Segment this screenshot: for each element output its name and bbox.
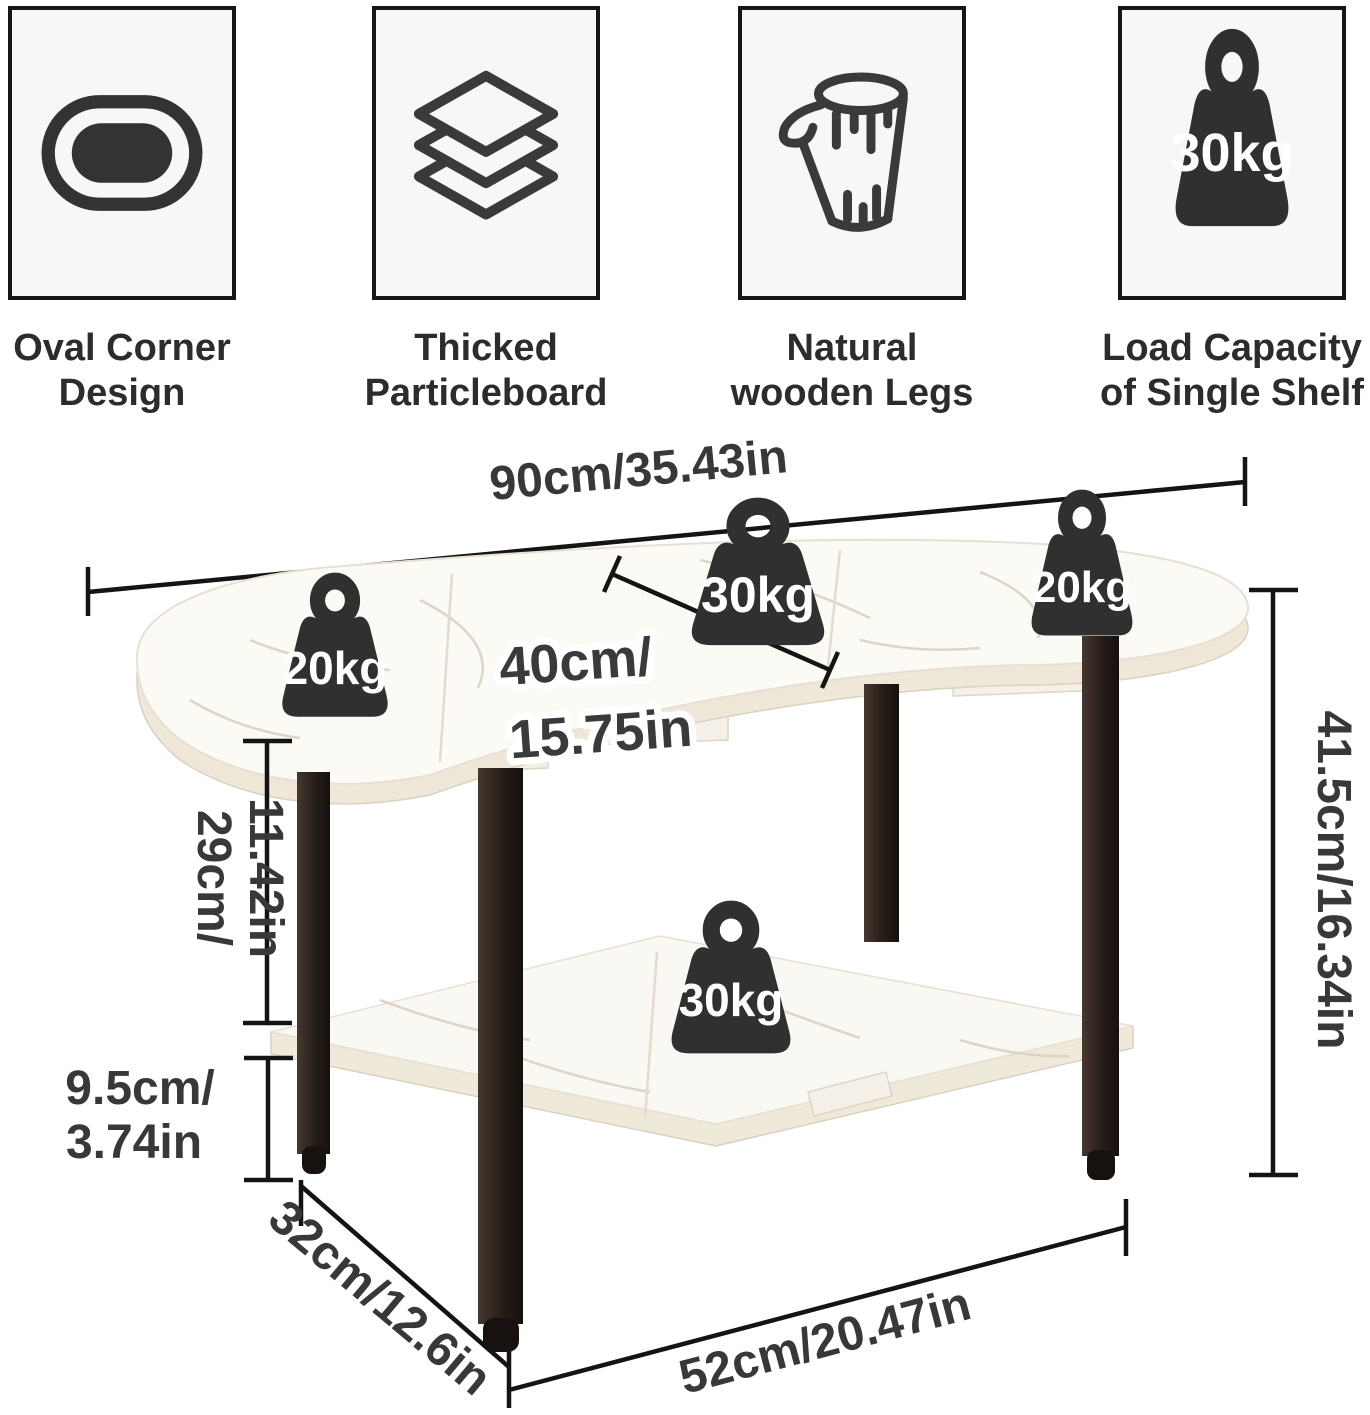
dim-total-height-label: 41.5cm/16.34in	[1307, 711, 1360, 1050]
dim-top-to-shelf-label-2: 11.42in	[239, 798, 292, 958]
weight-badge-top-right: 20kg	[1032, 498, 1133, 635]
dim-shelf-clearance-label-2: 3.74in	[66, 1116, 202, 1169]
table-leg-back-left	[297, 772, 330, 1174]
table-leg-back	[864, 684, 899, 942]
weight-badge-shelf: 30kg	[672, 910, 791, 1054]
dim-shelf-length-label: 52cm/20.47in	[674, 1277, 976, 1405]
table-leg-front-right	[1082, 636, 1119, 1180]
svg-text:30kg: 30kg	[679, 974, 784, 1026]
svg-text:30kg: 30kg	[701, 567, 815, 623]
product-infographic: 30kg Oval CornerDesign ThickedParticlebo…	[0, 0, 1370, 1415]
svg-text:20kg: 20kg	[283, 642, 388, 694]
dim-extension-width-label-1: 40cm/	[497, 627, 654, 698]
dim-line-shelf-length	[509, 1199, 1126, 1408]
dim-top-length-label: 90cm/35.43in	[487, 430, 790, 511]
dim-depth-label: 32cm/12.6in	[259, 1190, 502, 1406]
table-dimension-diagram: 20kg 30kg 20kg 30kg 29cm/ 11.42in	[0, 0, 1370, 1415]
dim-line-shelf-clearance	[244, 1058, 293, 1180]
dim-shelf-clearance-label-1: 9.5cm/	[65, 1062, 214, 1115]
table-leg-front-left	[478, 768, 523, 1352]
dim-top-to-shelf-label-1: 29cm/	[187, 810, 240, 946]
dim-extension-width-label-2: 15.75in	[507, 698, 694, 771]
svg-text:20kg: 20kg	[1032, 563, 1132, 612]
dim-line-total-height	[1249, 590, 1298, 1175]
